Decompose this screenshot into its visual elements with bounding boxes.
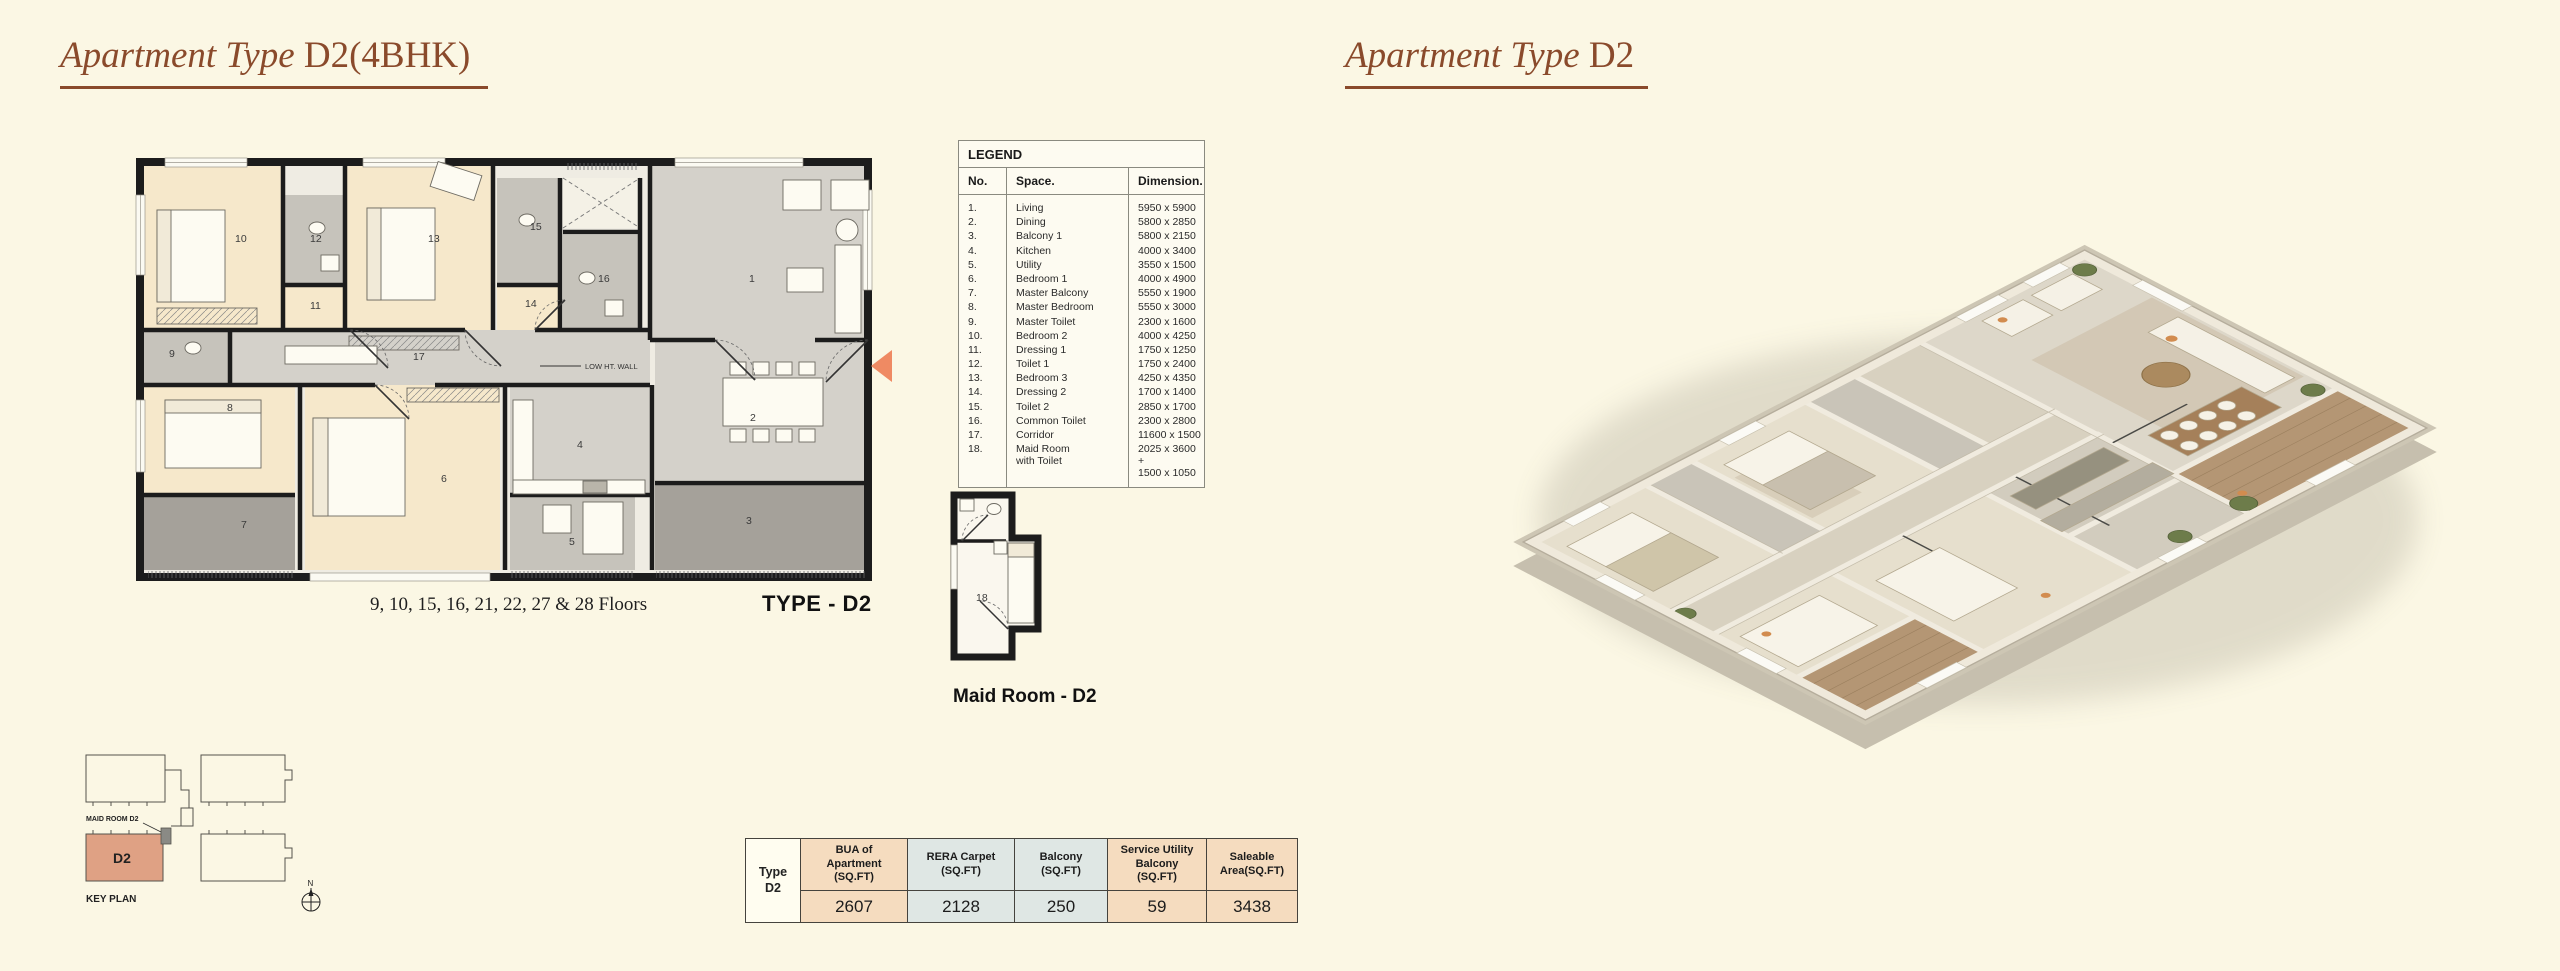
legend-header-row: No. Space. Dimension. — [959, 168, 1204, 195]
legend-row: 15.Toilet 22850 x 1700 — [959, 400, 1204, 414]
room-number-label: 14 — [525, 298, 537, 310]
room-number-label: 5 — [569, 536, 575, 548]
legend-table: LEGEND No. Space. Dimension. 1.Living595… — [958, 140, 1205, 488]
legend-cell: Bedroom 3 — [1007, 371, 1129, 385]
legend-cell: 14. — [959, 385, 1007, 399]
area-type-line1: Type — [747, 865, 799, 881]
legend-cell: 4000 x 3400 — [1129, 243, 1205, 257]
maid-room-caption: Maid Room - D2 — [953, 686, 1097, 708]
legend-cell: 11600 x 1500 — [1129, 428, 1205, 442]
area-table: Type D2 BUA of Apartment (SQ.FT)RERA Car… — [745, 838, 1298, 923]
legend-cell: Kitchen — [1007, 243, 1129, 257]
key-plan-maid-label: MAID ROOM D2 — [86, 816, 139, 823]
entry-arrow-icon — [868, 348, 894, 384]
area-header-cell: Service Utility Balcony (SQ.FT) — [1108, 839, 1207, 891]
legend-row: 3.Balcony 15800 x 2150 — [959, 229, 1204, 243]
legend-cell: 5550 x 3000 — [1129, 300, 1205, 314]
brochure-page: { "left_section": { "title_em": "Apartme… — [0, 0, 2560, 971]
area-header-cell: Saleable Area(SQ.FT) — [1207, 839, 1298, 891]
legend-cell: 18. — [959, 442, 1007, 487]
legend-cell: 10. — [959, 329, 1007, 343]
key-plan: D2 MAID ROOM D2 KEY PLAN N — [85, 750, 330, 920]
legend-cell: 1. — [959, 195, 1007, 216]
room-number-label: 9 — [169, 348, 175, 360]
room-number-label: 10 — [235, 233, 247, 245]
maid-room-plan: 18 — [950, 483, 1046, 675]
page-title-right-roman: D2 — [1589, 35, 1634, 76]
legend-cell: 5550 x 1900 — [1129, 286, 1205, 300]
legend-cell: Dining — [1007, 215, 1129, 229]
legend-row: 8.Master Bedroom5550 x 3000 — [959, 300, 1204, 314]
legend-cell: 16. — [959, 414, 1007, 428]
legend-cell: 4250 x 4350 — [1129, 371, 1205, 385]
legend-cell: 1750 x 2400 — [1129, 357, 1205, 371]
key-plan-title: KEY PLAN — [86, 894, 136, 905]
area-header-cell: Balcony (SQ.FT) — [1015, 839, 1108, 891]
page-title-right: Apartment Type D2 — [1345, 34, 1634, 77]
room-number-label: 2 — [750, 412, 756, 424]
key-plan-maid-marker — [161, 828, 171, 844]
legend-cell: Master Balcony — [1007, 286, 1129, 300]
legend-cell: 12. — [959, 357, 1007, 371]
room-number-label: 12 — [310, 233, 322, 245]
room-number-label: 6 — [441, 473, 447, 485]
title-underline-right — [1345, 86, 1648, 89]
legend-row: 9.Master Toilet2300 x 1600 — [959, 314, 1204, 328]
legend-cell: 8. — [959, 300, 1007, 314]
legend-row: 13.Bedroom 34250 x 4350 — [959, 371, 1204, 385]
legend-cell: 4000 x 4250 — [1129, 329, 1205, 343]
legend-cell: Bedroom 2 — [1007, 329, 1129, 343]
compass-icon: N — [302, 879, 320, 911]
legend-cell: 4000 x 4900 — [1129, 272, 1205, 286]
legend-cell: 5950 x 5900 — [1129, 195, 1205, 216]
legend-cell: 5800 x 2850 — [1129, 215, 1205, 229]
legend-cell: 3. — [959, 229, 1007, 243]
legend-cell: 1750 x 1250 — [1129, 343, 1205, 357]
area-value-cell: 2607 — [801, 891, 908, 923]
legend-cell: Balcony 1 — [1007, 229, 1129, 243]
legend-row: 7.Master Balcony5550 x 1900 — [959, 286, 1204, 300]
legend-cell: 4. — [959, 243, 1007, 257]
area-type-line2: D2 — [747, 881, 799, 897]
legend-cell: Common Toilet — [1007, 414, 1129, 428]
page-title-left-italic: Apartment Type — [60, 35, 304, 76]
legend-cell: 2025 x 3600 +1500 x 1050 — [1129, 442, 1205, 487]
area-header-cell: RERA Carpet (SQ.FT) — [908, 839, 1015, 891]
legend-row: 14.Dressing 21700 x 1400 — [959, 385, 1204, 399]
low-wall-label: LOW HT. WALL — [585, 362, 638, 371]
area-header-cell: BUA of Apartment (SQ.FT) — [801, 839, 908, 891]
area-table-value-row: 26072128250593438 — [746, 891, 1298, 923]
legend-row: 17.Corridor11600 x 1500 — [959, 428, 1204, 442]
legend-row: 1.Living5950 x 5900 — [959, 195, 1204, 216]
area-value-cell: 59 — [1108, 891, 1207, 923]
legend-cell: Master Toilet — [1007, 314, 1129, 328]
legend-cell: 13. — [959, 371, 1007, 385]
maid-room-number: 18 — [976, 592, 988, 604]
room-number-label: 17 — [413, 351, 425, 363]
legend-cell: 7. — [959, 286, 1007, 300]
legend-cell: 3550 x 1500 — [1129, 258, 1205, 272]
legend-cell: Dressing 1 — [1007, 343, 1129, 357]
legend-cell: 11. — [959, 343, 1007, 357]
room-number-label: 13 — [428, 233, 440, 245]
area-type-cell: Type D2 — [746, 839, 801, 923]
type-label: TYPE - D2 — [762, 591, 872, 617]
legend-cell: 2300 x 1600 — [1129, 314, 1205, 328]
legend-cell: Toilet 2 — [1007, 400, 1129, 414]
legend-cell: 2. — [959, 215, 1007, 229]
legend-cell: 6. — [959, 272, 1007, 286]
legend-row: 16.Common Toilet2300 x 2800 — [959, 414, 1204, 428]
legend-cell: 2850 x 1700 — [1129, 400, 1205, 414]
legend-row: 4.Kitchen4000 x 3400 — [959, 243, 1204, 257]
legend-cell: 9. — [959, 314, 1007, 328]
page-title-left-roman: D2(4BHK) — [304, 35, 470, 76]
legend-row: 2.Dining5800 x 2850 — [959, 215, 1204, 229]
isometric-render — [1500, 120, 2460, 840]
floor-plan: LOW HT. WALL 1234567891011121314151617 — [135, 150, 895, 587]
legend-cell: 17. — [959, 428, 1007, 442]
area-value-cell: 3438 — [1207, 891, 1298, 923]
legend-row: 18.Maid Roomwith Toilet2025 x 3600 +1500… — [959, 442, 1204, 487]
room-number-label: 15 — [530, 221, 542, 233]
legend-cell: Dressing 2 — [1007, 385, 1129, 399]
room-number-label: 7 — [241, 519, 247, 531]
legend-col-space: Space. — [1007, 168, 1129, 195]
area-table-header-row: Type D2 BUA of Apartment (SQ.FT)RERA Car… — [746, 839, 1298, 891]
area-value-cell: 2128 — [908, 891, 1015, 923]
page-title-right-italic: Apartment Type — [1345, 35, 1589, 76]
compass-letter: N — [308, 879, 314, 888]
legend-row: 5.Utility3550 x 1500 — [959, 258, 1204, 272]
room-number-label: 16 — [598, 273, 610, 285]
legend-cell: Bedroom 1 — [1007, 272, 1129, 286]
legend-cell: 5800 x 2150 — [1129, 229, 1205, 243]
room-number-label: 11 — [310, 300, 321, 312]
legend-cell: Living — [1007, 195, 1129, 216]
render-floorplate — [1513, 245, 2436, 725]
legend-col-dim: Dimension. — [1129, 168, 1205, 195]
legend-cell: 5. — [959, 258, 1007, 272]
legend-cell: Corridor — [1007, 428, 1129, 442]
legend-cell: Utility — [1007, 258, 1129, 272]
legend-cell: Maid Roomwith Toilet — [1007, 442, 1129, 487]
title-underline-left — [60, 86, 488, 89]
room-number-label: 8 — [227, 402, 233, 414]
legend-row: 6.Bedroom 14000 x 4900 — [959, 272, 1204, 286]
legend-row: 11.Dressing 11750 x 1250 — [959, 343, 1204, 357]
legend-col-no: No. — [959, 168, 1007, 195]
area-value-cell: 250 — [1015, 891, 1108, 923]
page-title-left: Apartment Type D2(4BHK) — [60, 34, 470, 77]
room-number-label: 3 — [746, 515, 752, 527]
legend-cell: 1700 x 1400 — [1129, 385, 1205, 399]
legend-cell: Master Bedroom — [1007, 300, 1129, 314]
key-plan-unit-label: D2 — [113, 850, 131, 866]
legend-row: 12.Toilet 11750 x 2400 — [959, 357, 1204, 371]
room-number-label: 4 — [577, 439, 583, 451]
floors-note: 9, 10, 15, 16, 21, 22, 27 & 28 Floors — [370, 594, 647, 616]
legend-cell: Toilet 1 — [1007, 357, 1129, 371]
room-number-label: 1 — [749, 273, 755, 285]
legend-title: LEGEND — [959, 141, 1204, 168]
legend-row: 10.Bedroom 24000 x 4250 — [959, 329, 1204, 343]
legend-cell: 15. — [959, 400, 1007, 414]
legend-cell: 2300 x 2800 — [1129, 414, 1205, 428]
